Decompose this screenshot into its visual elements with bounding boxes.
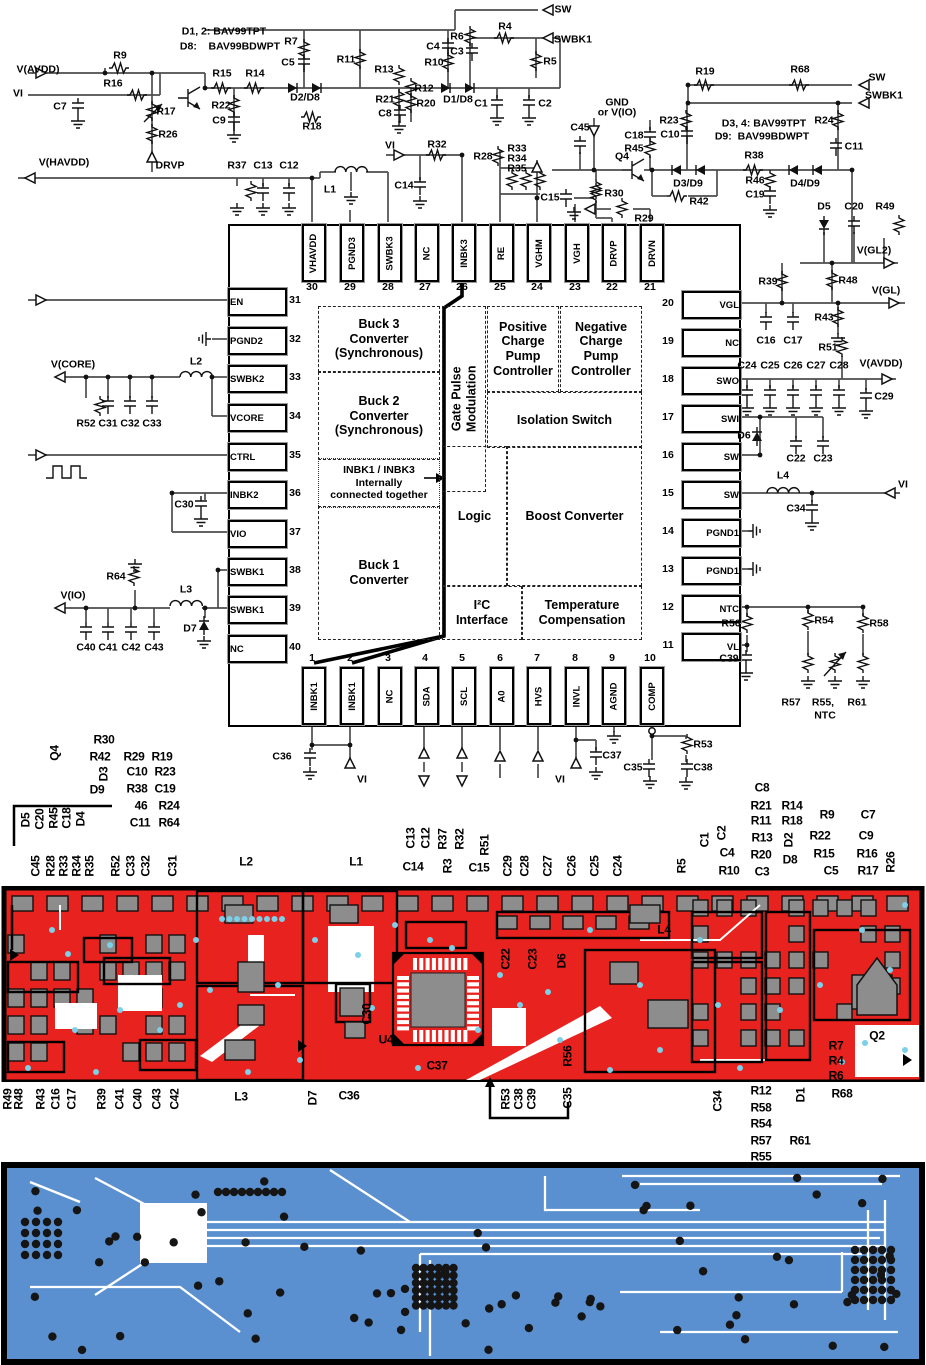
pcb-ref-label: R15 [813, 848, 834, 861]
pin-name: NC [421, 246, 432, 260]
functional-block-boost: Boost Converter [507, 446, 642, 586]
component-label: R28 [473, 151, 492, 162]
pcb-ref-label: R37 [437, 828, 450, 849]
pin-number: 7 [534, 652, 540, 664]
component-label: R56 [721, 618, 740, 629]
pcb-ref-label: R12 [750, 1085, 771, 1098]
pin-box: SW [682, 481, 741, 509]
pin-name: COMP [647, 682, 658, 711]
component-label: L2 [190, 356, 202, 367]
component-label: R29 [634, 213, 653, 224]
pcb-ref-label: R43 [35, 1088, 48, 1109]
pcb-silk-label: D6 [556, 954, 569, 969]
pcb-ref-label: R10 [718, 865, 739, 878]
component-label: C41 [98, 642, 117, 653]
component-label: C32 [120, 418, 139, 429]
pcb-ref-label: R26 [885, 851, 898, 872]
pin-box: INBK2 [228, 481, 287, 509]
component-label: R51 [818, 342, 837, 353]
pin-box: SW [682, 443, 741, 471]
block-label: Buck 2 Converter (Synchronous) [335, 394, 423, 438]
pcb-ref-label: R54 [750, 1118, 771, 1131]
component-label: V(GL2) [857, 245, 891, 256]
pin-number: 14 [662, 525, 674, 537]
pin-box: INBK3 [452, 224, 476, 282]
pcb-ref-label: D2 [783, 833, 796, 848]
pcb-ref-label: R64 [158, 817, 179, 830]
pcb-ref-label: D5 [20, 813, 33, 828]
pin-name: VCORE [230, 413, 264, 424]
component-label: C22 [786, 453, 805, 464]
pin-number: 40 [289, 641, 301, 653]
pin-box: NC [378, 667, 402, 725]
pcb-ref-label: R9 [820, 809, 835, 822]
pcb-ref-label: R16 [856, 848, 877, 861]
pin-name: SDA [422, 686, 433, 706]
pcb-ref-label: R42 [89, 751, 110, 764]
pcb-ref-label: C3 [755, 866, 770, 879]
component-label: R54 [814, 615, 833, 626]
component-label: C29 [874, 391, 893, 402]
pcb-ref-label: R61 [789, 1135, 810, 1148]
pcb-silk-label: R7 [829, 1040, 844, 1053]
component-label: R32 [427, 139, 446, 150]
component-label: L3 [180, 584, 192, 595]
pcb-ref-label: R52 [110, 855, 123, 876]
component-label: V(AVDD) [860, 358, 903, 369]
pcb-ref-label: R68 [831, 1088, 852, 1101]
pin-box: SWBK3 [378, 224, 402, 282]
pin-box: AGND [602, 667, 626, 725]
component-label: C26 [783, 360, 802, 371]
pin-box: PGND3 [340, 224, 364, 282]
block-label: Temperature Compensation [539, 598, 626, 628]
pcb-ref-label: R23 [154, 766, 175, 779]
pcb-ref-label: R57 [750, 1135, 771, 1148]
component-label: C2 [538, 98, 551, 109]
component-label: C5 [281, 57, 294, 68]
pin-number: 34 [289, 410, 301, 422]
pcb-ref-label: R35 [84, 855, 97, 876]
pcb-ref-label: R14 [781, 800, 802, 813]
pcb-ref-label: D9 [90, 784, 105, 797]
pin-number: 1 [309, 652, 315, 664]
functional-block-temp: Temperature Compensation [522, 586, 642, 640]
pin-name: NC [384, 689, 395, 703]
pin-number: 36 [289, 487, 301, 499]
pcb-ref-label: R38 [126, 783, 147, 796]
component-label: R26 [158, 129, 177, 140]
pin-number: 20 [662, 297, 674, 309]
component-label: R38 [744, 150, 763, 161]
pcb-ref-label: C14 [402, 861, 423, 874]
pcb-silk-label: Q2 [869, 1030, 884, 1043]
component-label: C31 [98, 418, 117, 429]
pin-number: 24 [531, 281, 543, 293]
pcb-ref-label: 46 [135, 800, 148, 813]
component-label: R11 [337, 54, 356, 65]
pin-box: SDA [415, 667, 439, 725]
functional-block-pos: Positive Charge Pump Controller [487, 306, 559, 392]
pin-name: INBK1 [309, 682, 320, 711]
block-label: Buck 3 Converter (Synchronous) [335, 317, 423, 361]
pin-box: NC [228, 635, 287, 663]
pin-box: INBK1 [340, 667, 364, 725]
pin-box: SWO [682, 367, 741, 395]
pin-box: EN [228, 288, 287, 316]
pin-name: CTRL [230, 452, 255, 463]
pcb-silk-label: L4 [657, 924, 670, 937]
component-label: V(GL) [872, 285, 901, 296]
pcb-ref-label: C29 [502, 855, 515, 876]
pin-number: 9 [609, 652, 615, 664]
pin-box: VGHM [527, 224, 551, 282]
component-label: DRVP [156, 160, 185, 171]
component-label: V(HAVDD) [39, 157, 90, 168]
figure-root: VHAVDD30PGND329SWBK328NC27INBK326RE25VGH… [0, 0, 926, 1365]
component-label: R52 [76, 418, 95, 429]
pin-name: RE [496, 246, 507, 259]
component-label: C28 [829, 360, 848, 371]
pcb-ref-label: C33 [125, 855, 138, 876]
pcb-ref-label: C2 [716, 826, 729, 841]
pcb-top-layer-image [0, 886, 926, 1082]
pin-name: SWBK2 [230, 374, 264, 385]
component-label: C42 [121, 642, 140, 653]
pin-box: A0 [490, 667, 514, 725]
pin-number: 28 [382, 281, 394, 293]
block-label: Boost Converter [526, 509, 624, 524]
component-label: R58 [869, 618, 888, 629]
pin-number: 17 [662, 411, 674, 423]
pcb-ref-label: C27 [542, 855, 555, 876]
component-label: R13 [374, 64, 393, 75]
component-label: R39 [758, 276, 777, 287]
component-label: C19 [745, 189, 764, 200]
component-label: or V(IO) [598, 107, 637, 118]
pcb-ref-label: R33 [58, 855, 71, 876]
component-label: R9 [113, 50, 126, 61]
pcb-ref-label: R3 [442, 859, 455, 874]
pcb-ref-label: D8 [783, 854, 798, 867]
component-label: C16 [756, 335, 775, 346]
pin-name: NC [725, 338, 739, 349]
pin-number: 38 [289, 564, 301, 576]
pin-number: 39 [289, 602, 301, 614]
pin-number: 19 [662, 335, 674, 347]
component-label: L4 [777, 470, 789, 481]
pcb-ref-label: D7 [307, 1091, 320, 1106]
component-label: D5 [817, 201, 830, 212]
pcb-silk-label: C30 [361, 1003, 374, 1024]
pcb-silk-label: C22 [500, 948, 513, 969]
component-label: C14 [394, 180, 413, 191]
functional-block-note: INBK1 / INBK3 Internally connected toget… [318, 458, 440, 508]
pcb-ref-label: R55 [750, 1151, 771, 1164]
component-label: C15 [540, 192, 559, 203]
component-label: C7 [53, 101, 66, 112]
component-label: R53 [693, 739, 712, 750]
pin-number: 32 [289, 333, 301, 345]
pin-box: PGND1 [682, 557, 741, 585]
pin-name: PGND1 [706, 528, 739, 539]
component-label: C11 [845, 141, 864, 152]
component-label: D8: BAV99BDWPT [180, 41, 280, 52]
component-label: R17 [156, 106, 175, 117]
component-label: Q4 [615, 151, 629, 162]
pin-name: DRVP [609, 240, 620, 266]
pin-name: NTC [719, 604, 739, 615]
component-label: VI [357, 774, 367, 785]
pcb-ref-label: C41 [114, 1088, 127, 1109]
pcb-ref-label: R17 [857, 865, 878, 878]
pcb-ref-label: C13 [405, 827, 418, 848]
pcb-ref-label: R45 [48, 807, 61, 828]
pcb-ref-label: C5 [824, 865, 839, 878]
pcb-silk-label: C37 [426, 1060, 447, 1073]
block-label: INBK1 / INBK3 Internally connected toget… [330, 464, 427, 501]
component-label: C40 [76, 642, 95, 653]
component-label: C39 [719, 653, 738, 664]
component-label: R48 [838, 275, 857, 286]
pin-number: 23 [569, 281, 581, 293]
pcb-ref-label: R32 [454, 828, 467, 849]
component-label: SWBK1 [554, 34, 592, 45]
component-label: C38 [693, 762, 712, 773]
component-label: VI [555, 774, 565, 785]
pin-name: SWBK3 [385, 236, 396, 270]
pin-number: 4 [422, 652, 428, 664]
pin-number: 26 [456, 281, 468, 293]
pcb-ref-label: R53 [500, 1088, 513, 1109]
pin-box: NC [415, 224, 439, 282]
functional-block-buck1: Buck 1 Converter [318, 506, 440, 640]
component-label: R22 [211, 100, 230, 111]
component-label: V(AVDD) [17, 64, 60, 75]
component-label: SW [555, 4, 572, 15]
pcb-ref-label: C43 [151, 1088, 164, 1109]
pin-number: 5 [459, 652, 465, 664]
component-label: D4/D9 [790, 178, 820, 189]
pin-number: 8 [572, 652, 578, 664]
pcb-ref-label: C45 [30, 855, 43, 876]
pcb-ref-label: C16 [50, 1088, 63, 1109]
component-label: V(IO) [60, 590, 85, 601]
pcb-ref-label: C36 [338, 1090, 359, 1103]
pin-number: 2 [347, 652, 353, 664]
pin-name: PGND1 [706, 566, 739, 577]
component-label: D7 [183, 623, 196, 634]
pcb-ref-label: Q4 [49, 745, 62, 760]
block-label: Logic [458, 509, 491, 524]
pcb-ref-label: C25 [589, 855, 602, 876]
component-label: R14 [245, 68, 264, 79]
pin-name: VHAVDD [309, 233, 320, 272]
pin-box: PGND2 [228, 327, 287, 355]
pin-name: VGHM [534, 239, 545, 268]
component-label: R23 [659, 115, 678, 126]
component-label: R24 [814, 115, 833, 126]
pcb-ref-label: R19 [151, 751, 172, 764]
component-label: C1 [474, 98, 487, 109]
component-label: SW [869, 72, 886, 83]
component-label: VI [13, 88, 23, 99]
pin-box: SWBK1 [228, 558, 287, 586]
pin-number: 16 [662, 449, 674, 461]
pin-number: 27 [419, 281, 431, 293]
component-label: D1, 2: BAV99TPT [182, 26, 266, 37]
pin-number: 29 [344, 281, 356, 293]
pin-number: 3 [385, 652, 391, 664]
component-label: D6 [737, 430, 750, 441]
pin-name: INBK2 [230, 490, 259, 501]
pin-number: 21 [644, 281, 656, 293]
component-label: R30 [604, 188, 623, 199]
pin-number: 12 [662, 601, 674, 613]
pcb-ref-label: C40 [132, 1088, 145, 1109]
pin-box: SWBK1 [228, 596, 287, 624]
pcb-ref-label: C26 [566, 855, 579, 876]
pcb-silk-label: R6 [829, 1070, 844, 1083]
pcb-silk-label: C23 [527, 948, 540, 969]
pcb-ref-label: R13 [751, 832, 772, 845]
pin-name: SCL [459, 687, 470, 706]
pin-box: COMP [640, 667, 664, 725]
component-label: C37 [602, 750, 621, 761]
pcb-ref-label: C32 [140, 855, 153, 876]
component-label: L1 [324, 184, 336, 195]
pcb-ref-label: L2 [239, 856, 252, 869]
pin-number: 11 [662, 639, 673, 651]
pcb-bottom-layer-image [0, 1162, 926, 1365]
component-label: C35 [623, 762, 642, 773]
pin-name: SWI [721, 414, 739, 425]
pcb-ref-label: R22 [809, 830, 830, 843]
pin-name: VGH [572, 243, 583, 264]
pin-name: DRVN [647, 240, 658, 267]
pin-name: INBK3 [459, 239, 470, 268]
pin-name: INVL [572, 685, 583, 707]
component-label: R4 [498, 21, 511, 32]
component-label: C10 [660, 129, 679, 140]
component-label: R18 [302, 121, 321, 132]
component-label: R15 [212, 68, 231, 79]
pcb-silk-label: R4 [829, 1055, 844, 1068]
pcb-ref-label: R51 [479, 834, 492, 855]
component-label: C43 [144, 642, 163, 653]
pcb-ref-label: L1 [349, 856, 362, 869]
component-label: R16 [103, 78, 122, 89]
pin-box: VGL [682, 291, 741, 319]
pcb-ref-label: R28 [45, 855, 58, 876]
pcb-silk-label: R56 [562, 1045, 575, 1066]
component-label: C8 [378, 108, 391, 119]
pin-box: INVL [565, 667, 589, 725]
pin-number: 25 [494, 281, 506, 293]
component-label: V(CORE) [51, 359, 95, 370]
component-label: C4 [426, 41, 439, 52]
pcb-ref-label: C31 [167, 855, 180, 876]
component-label: C9 [212, 115, 225, 126]
component-label: C3 [450, 46, 463, 57]
pin-number: 10 [644, 652, 656, 664]
component-label: D9: BAV99BDWPT [715, 131, 809, 142]
component-label: R37 [227, 160, 246, 171]
pcb-ref-label: C11 [130, 817, 150, 830]
component-label: D3/D9 [673, 178, 703, 189]
pcb-ref-label: C4 [720, 847, 735, 860]
component-label: D3, 4: BAV99TPT [722, 118, 806, 129]
pin-number: 22 [606, 281, 618, 293]
component-label: R20 [416, 98, 435, 109]
pin-box: RE [490, 224, 514, 282]
pin-name: HVS [533, 686, 544, 706]
functional-block-iso: Isolation Switch [487, 392, 642, 448]
pcb-ref-label: C15 [468, 862, 489, 875]
pin-number: 35 [289, 449, 301, 461]
pin-box: HVS [527, 667, 551, 725]
component-label: R57 [781, 697, 800, 708]
component-label: C17 [783, 335, 802, 346]
pin-name: PGND2 [230, 336, 263, 347]
block-label: Gate Pulse Modulation [449, 366, 479, 433]
block-label: Buck 1 Converter [349, 558, 408, 588]
component-label: C27 [806, 360, 825, 371]
pin-number: 33 [289, 371, 301, 383]
pcb-ref-label: R11 [751, 815, 771, 828]
pin-box: DRVN [640, 224, 664, 282]
component-label: R64 [106, 571, 125, 582]
pin-number: 18 [662, 373, 674, 385]
pcb-ref-label: C10 [126, 766, 147, 779]
component-label: R7 [284, 36, 297, 47]
pin-box: SWBK2 [228, 365, 287, 393]
pcb-ref-label: C12 [420, 827, 433, 848]
functional-block-i2c: I²C Interface [442, 586, 522, 640]
pcb-ref-label: R20 [750, 849, 771, 862]
pcb-ref-label: R18 [781, 815, 802, 828]
pin-box: VCORE [228, 404, 287, 432]
component-label: VI [385, 140, 395, 151]
functional-block-logic: Logic [442, 446, 507, 586]
pcb-ref-label: C7 [861, 809, 876, 822]
component-label: C25 [760, 360, 779, 371]
pin-box: INBK1 [302, 667, 326, 725]
component-label: R6 [450, 31, 463, 42]
pin-name: INBK1 [347, 682, 358, 711]
component-label: R46 [745, 175, 764, 186]
component-label: R19 [695, 66, 714, 77]
component-label: R43 [814, 312, 833, 323]
pcb-ref-label: R24 [158, 800, 179, 813]
block-label: Positive Charge Pump Controller [493, 320, 553, 379]
component-label: NTC [814, 710, 836, 721]
pcb-ref-label: C1 [699, 833, 712, 848]
pin-number: 37 [289, 526, 301, 538]
component-label: C45 [570, 122, 589, 133]
component-label: C23 [813, 453, 832, 464]
pcb-ref-label: R30 [93, 734, 114, 747]
component-label: D2/D8 [290, 92, 320, 103]
pin-number: 15 [662, 487, 674, 499]
pin-box: VHAVDD [302, 224, 326, 282]
pin-box: PGND1 [682, 519, 741, 547]
pin-name: NC [230, 644, 244, 655]
pcb-ref-label: C17 [66, 1088, 79, 1109]
component-label: VI [898, 479, 908, 490]
pin-box: NC [682, 329, 741, 357]
component-label: R61 [847, 697, 866, 708]
